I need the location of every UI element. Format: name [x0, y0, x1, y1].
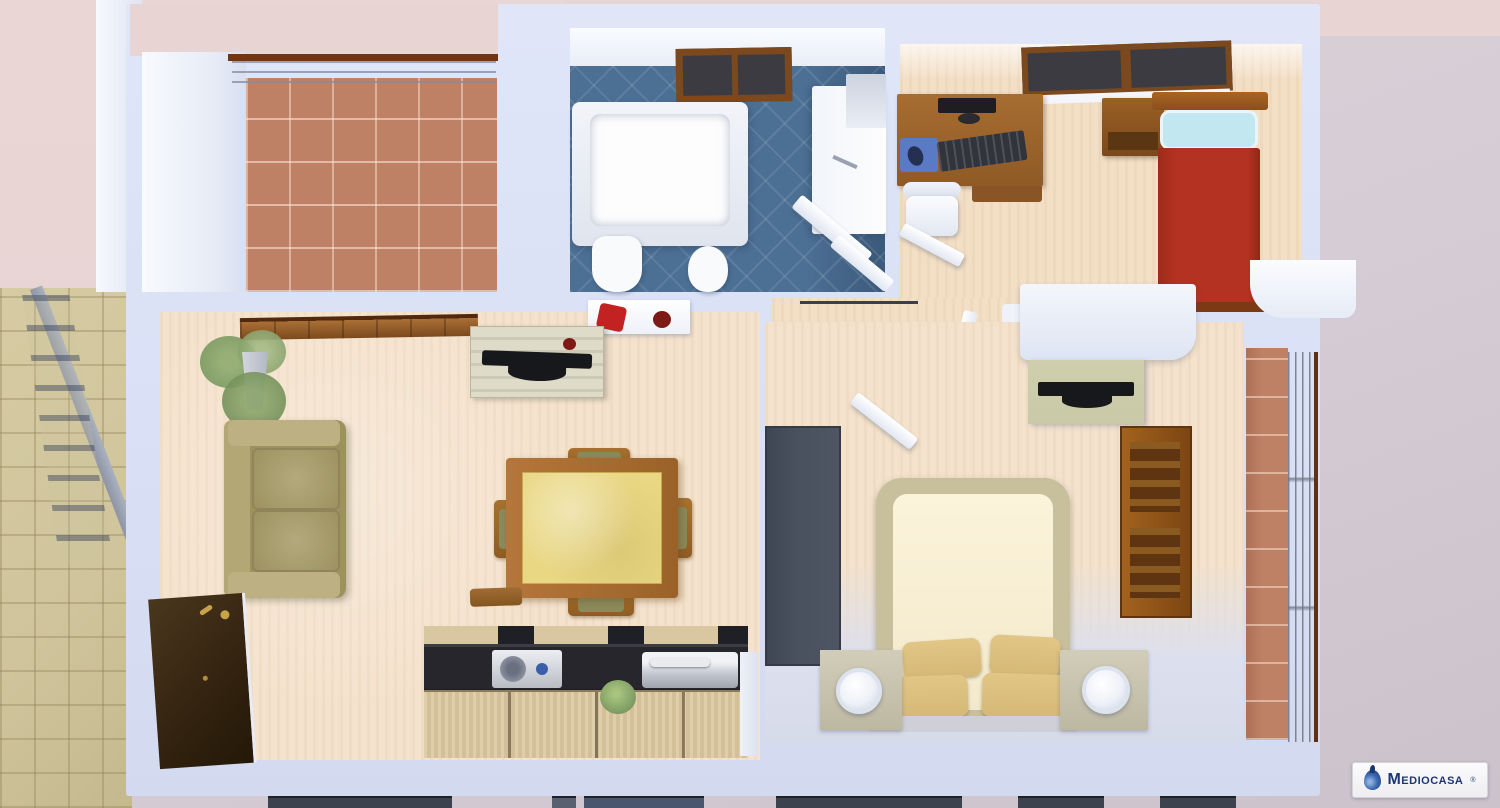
master-bedroom-closet-top: [1020, 284, 1196, 360]
washer-door: [500, 656, 526, 682]
monitor-stand: [958, 113, 980, 124]
terrace-railing-bars: [232, 61, 496, 85]
agency-logo: Mediocasa®: [1352, 762, 1488, 798]
bed-pillow: [989, 634, 1061, 678]
cropped-edge-shape: [552, 796, 576, 808]
registered-trademark: ®: [1470, 777, 1475, 784]
bed-pillow: [902, 637, 982, 680]
balcony-wall-top: [1250, 260, 1356, 318]
toilet: [592, 236, 642, 292]
cropped-edge-shape: [268, 796, 452, 808]
door-keyhole: [203, 676, 208, 681]
computer-monitor: [938, 98, 996, 113]
kitchen-plant: [600, 680, 636, 714]
kitchen-end-panel: [740, 652, 758, 756]
corridor-threshold: [800, 301, 918, 304]
dresser: [1120, 426, 1192, 618]
dresser-drawers: [1130, 442, 1180, 512]
wardrobe: [765, 426, 841, 666]
washing-machine: [492, 650, 562, 688]
sofa-armrest: [228, 420, 340, 446]
single-bed-pillow: [1160, 110, 1258, 150]
bathroom-cabinet: [846, 74, 886, 128]
terrace-sky-gap: [130, 4, 498, 56]
vanity-faucet: [832, 155, 857, 169]
decor-object: [563, 338, 576, 350]
cropped-edge-shape: [1018, 796, 1104, 808]
terrace-wall-face: [142, 52, 246, 292]
balcony-railing: [1288, 352, 1318, 742]
oven: [642, 652, 738, 688]
floor-plan-render: Mediocasa®: [0, 0, 1500, 808]
terrace-railing-handrail: [228, 54, 498, 61]
red-bowl: [653, 311, 671, 328]
kitchen-base-cabinets: [424, 690, 748, 758]
window-mullion: [732, 55, 739, 95]
cropped-edge-shape: [776, 796, 962, 808]
window-mullion: [1120, 50, 1131, 88]
entrance-door: [148, 593, 257, 769]
door-handle: [199, 604, 213, 616]
cropped-edge-shape: [1160, 796, 1236, 808]
logo-brand-text: Mediocasa: [1387, 771, 1463, 789]
sofa-cushion: [252, 448, 340, 510]
sofa-cushion: [252, 510, 340, 572]
washer-dial: [536, 663, 548, 675]
cabinet-open-shelf: [1108, 132, 1158, 150]
dining-table-top: [522, 472, 662, 584]
terrace-tile-floor: [246, 78, 497, 292]
kitchen-stool: [470, 587, 523, 607]
water-drop-icon: [1364, 770, 1381, 790]
tv-base: [1062, 394, 1112, 408]
dresser-drawers: [1130, 528, 1180, 598]
cabinet-gaps: [424, 692, 748, 758]
table-lamp-right: [1082, 666, 1130, 714]
single-bed-headboard: [1152, 92, 1268, 110]
desk-return: [972, 186, 1042, 202]
table-lamp-left: [836, 668, 882, 714]
cropped-edge-shape: [584, 796, 704, 808]
oven-handle: [650, 658, 710, 667]
kitchen-tall-units: [424, 626, 748, 646]
bathtub-basin: [590, 114, 730, 226]
single-bed-red-cover: [1158, 148, 1260, 306]
door-handle: [220, 610, 230, 620]
balcony-tile-floor: [1246, 348, 1288, 740]
bidet: [688, 246, 728, 292]
bathroom-window: [676, 47, 793, 103]
